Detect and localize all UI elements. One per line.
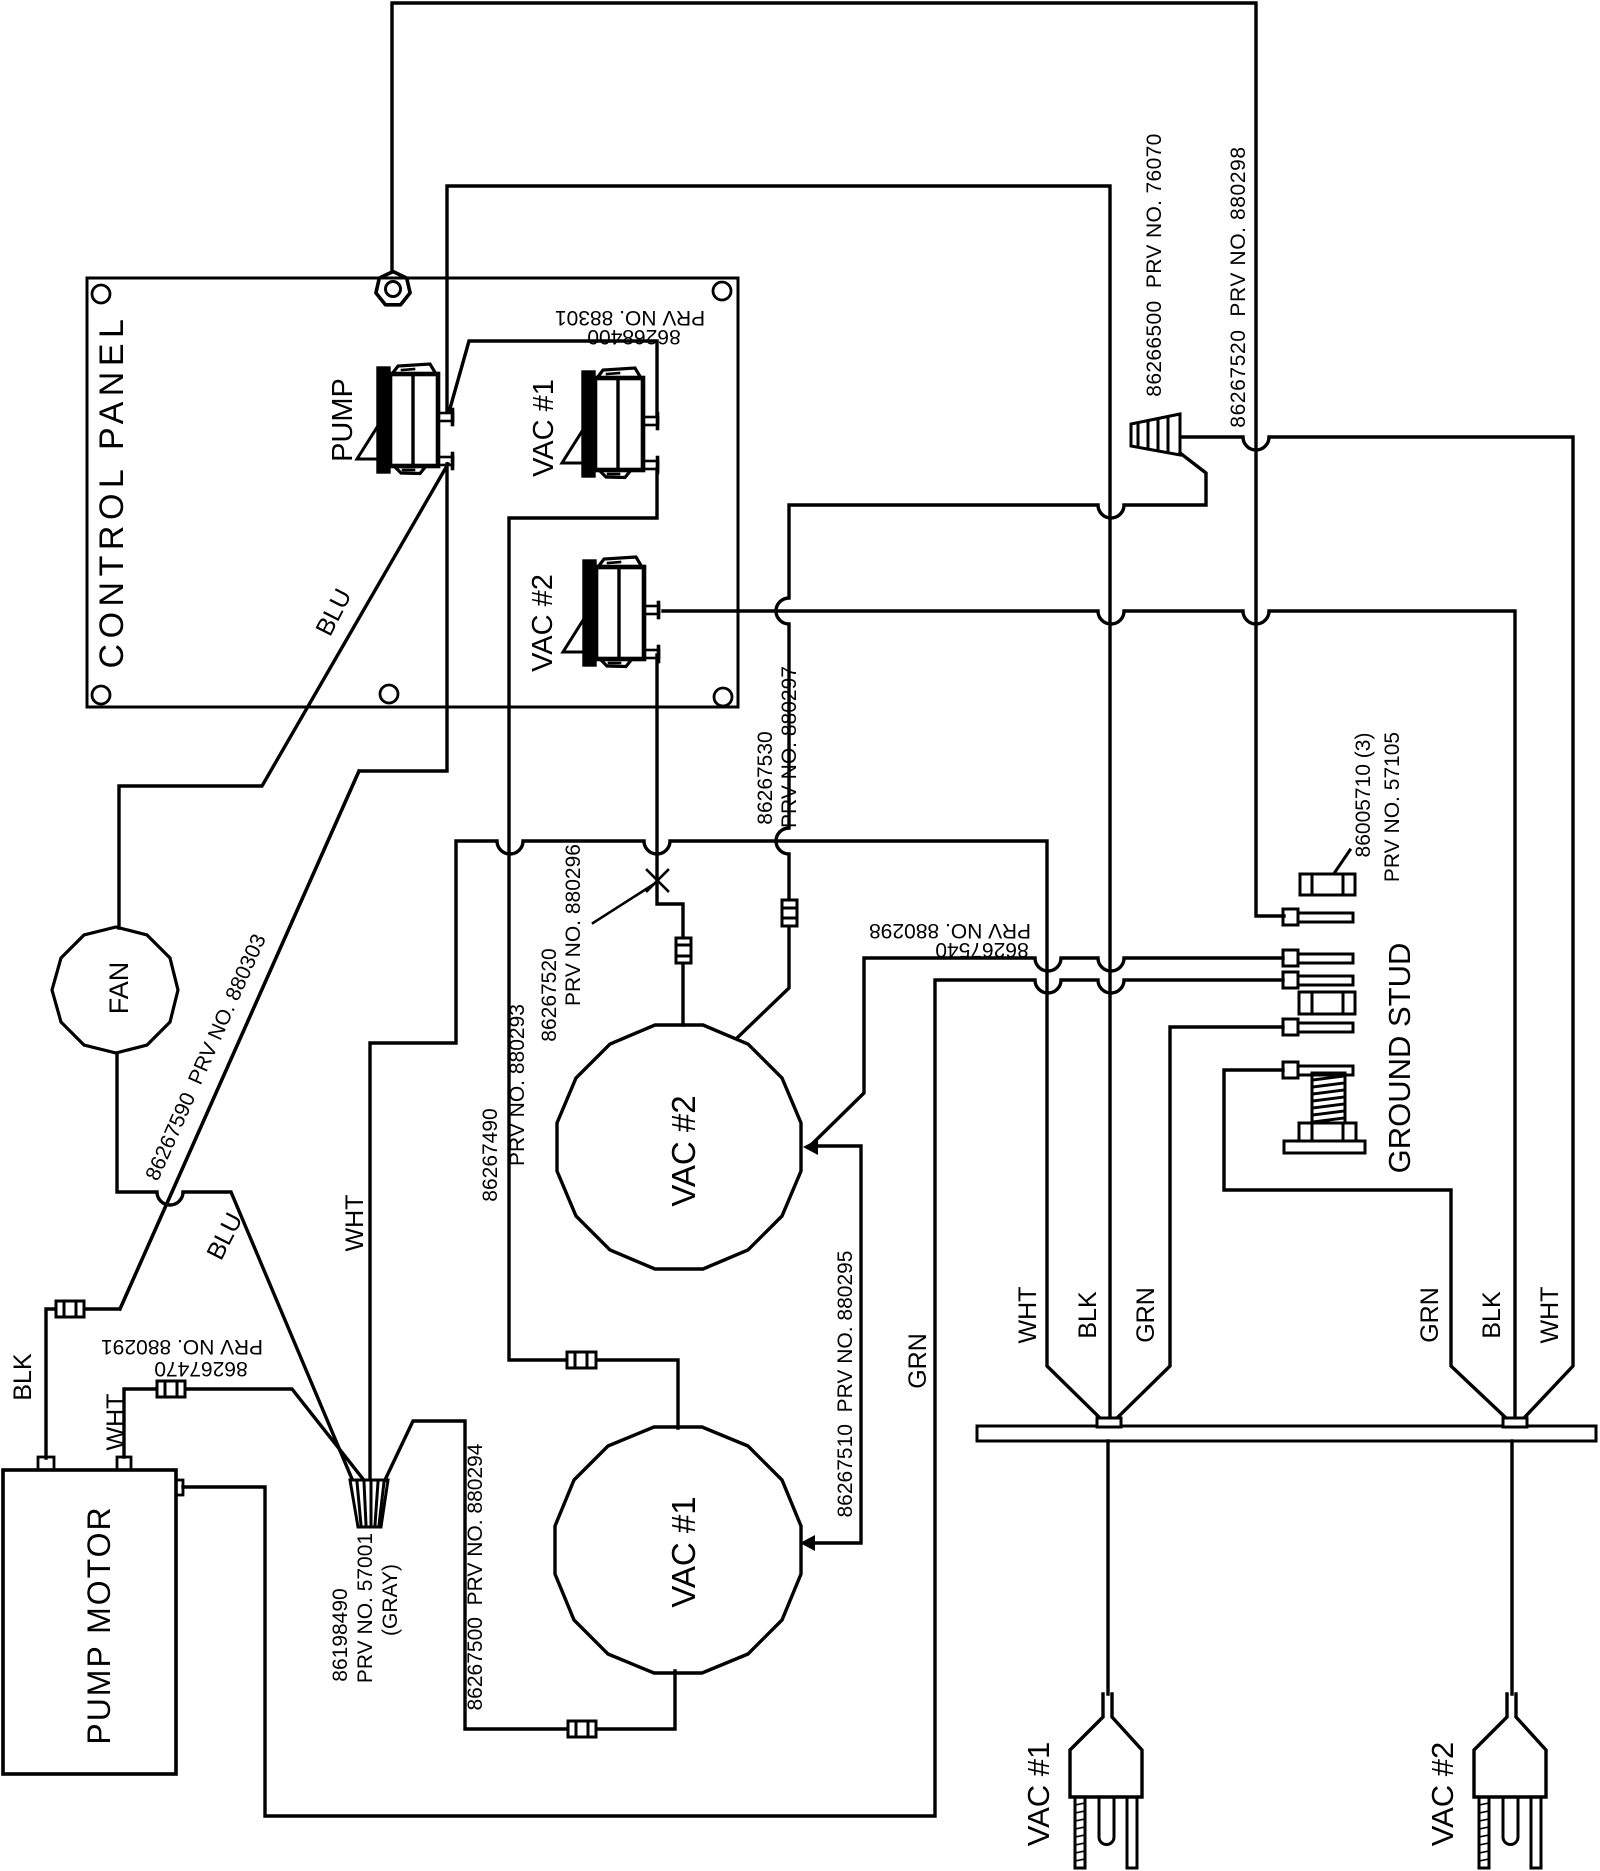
svg-text:86266500 PRV NO. 76070: 86266500 PRV NO. 76070: [1143, 133, 1166, 396]
svg-text:86267520: 86267520: [538, 948, 561, 1041]
svg-text:CONTROL PANEL: CONTROL PANEL: [93, 314, 131, 669]
svg-text:WHT: WHT: [1536, 1287, 1564, 1344]
svg-text:86267540: 86267540: [935, 938, 1028, 961]
svg-text:PUMP MOTOR: PUMP MOTOR: [81, 1505, 117, 1744]
svg-text:86267490: 86267490: [479, 1108, 502, 1201]
svg-text:BLK: BLK: [9, 1353, 37, 1401]
svg-text:PRV NO. 880293: PRV NO. 880293: [506, 1004, 529, 1166]
svg-text:WHT: WHT: [1014, 1287, 1042, 1344]
svg-text:GRN: GRN: [1132, 1287, 1160, 1343]
svg-text:PUMP: PUMP: [327, 378, 359, 462]
svg-text:BLK: BLK: [1478, 1291, 1506, 1339]
svg-text:VAC #1: VAC #1: [1021, 1742, 1056, 1847]
svg-text:86005710 (3): 86005710 (3): [1352, 733, 1375, 858]
svg-text:PRV NO. 880296: PRV NO. 880296: [562, 844, 585, 1006]
svg-text:VAC #2: VAC #2: [527, 574, 559, 672]
svg-text:GROUND STUD: GROUND STUD: [1382, 943, 1417, 1174]
svg-text:PRV NO. 880297: PRV NO. 880297: [778, 666, 801, 828]
svg-text:PRV NO. 880291: PRV NO. 880291: [101, 1335, 263, 1358]
svg-text:86267470: 86267470: [154, 1357, 247, 1380]
svg-text:86198490: 86198490: [329, 1588, 352, 1681]
svg-text:FAN: FAN: [104, 962, 134, 1015]
svg-text:GRN: GRN: [1416, 1287, 1444, 1343]
svg-text:PRV NO. 57001: PRV NO. 57001: [354, 1533, 377, 1683]
svg-text:VAC #1: VAC #1: [528, 379, 560, 477]
svg-text:VAC #2: VAC #2: [1425, 1742, 1460, 1847]
svg-text:86268400: 86268400: [587, 325, 680, 348]
svg-text:86267500 PRV NO. 880294: 86267500 PRV NO. 880294: [464, 1443, 487, 1710]
svg-text:GRN: GRN: [904, 1333, 932, 1389]
svg-text:VAC #1: VAC #1: [665, 1496, 702, 1607]
svg-text:86267520 PRV NO. 880298: 86267520 PRV NO. 880298: [1227, 146, 1250, 427]
svg-text:86267510 PRV NO. 880295: 86267510 PRV NO. 880295: [834, 1251, 857, 1518]
svg-text:WHT: WHT: [102, 1394, 130, 1451]
svg-text:86267530: 86267530: [754, 731, 777, 824]
svg-text:VAC #2: VAC #2: [665, 1095, 702, 1206]
svg-text:BLK: BLK: [1074, 1291, 1102, 1339]
svg-text:WHT: WHT: [341, 1195, 369, 1252]
svg-text:PRV NO. 57105: PRV NO. 57105: [1381, 732, 1404, 882]
svg-text:(GRAY): (GRAY): [379, 1564, 402, 1636]
